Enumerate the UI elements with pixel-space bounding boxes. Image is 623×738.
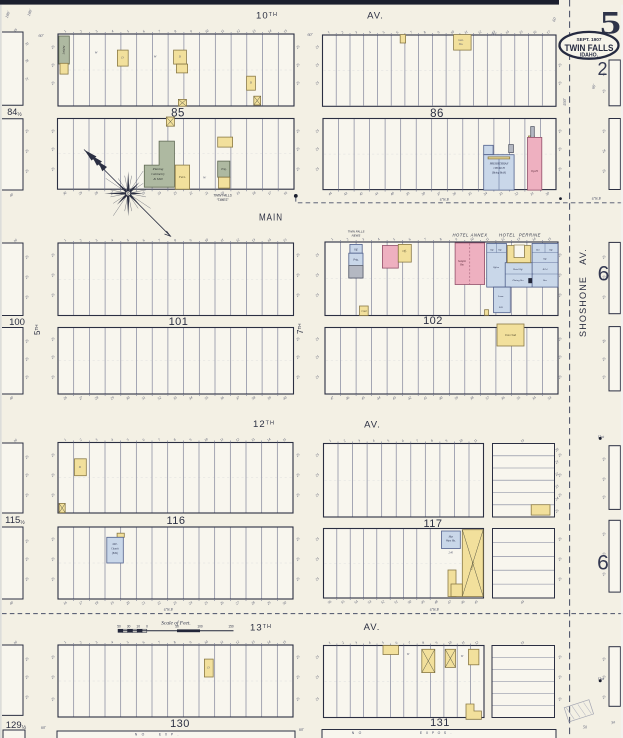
svg-text:Furn.: Furn. xyxy=(178,175,186,179)
svg-text:Coal: Coal xyxy=(361,310,366,313)
svg-text:Prtg.: Prtg. xyxy=(352,259,359,262)
svg-text:60′: 60′ xyxy=(38,33,43,38)
svg-text:102: 102 xyxy=(423,315,443,327)
svg-text:Church: Church xyxy=(111,548,119,551)
svg-text:Office: Office xyxy=(493,266,500,269)
svg-text:240: 240 xyxy=(449,551,454,555)
svg-text:Op.H.: Op.H. xyxy=(531,169,539,173)
svg-text:“TIMES”: “TIMES” xyxy=(217,198,230,202)
svg-text:6″W.P.: 6″W.P. xyxy=(440,198,450,202)
svg-text:HOTEL ANNEX: HOTEL ANNEX xyxy=(452,232,487,237)
svg-text:.: . xyxy=(178,733,179,737)
svg-text:Off.: Off. xyxy=(549,248,553,251)
svg-text:W: W xyxy=(407,652,410,656)
svg-text:86: 86 xyxy=(430,108,444,120)
svg-text:60′: 60′ xyxy=(299,727,304,732)
svg-text:AV.: AV. xyxy=(364,420,381,431)
svg-text:£60′: £60′ xyxy=(562,98,567,105)
svg-text:Off.: Off. xyxy=(498,248,502,251)
svg-text:Off.: Off. xyxy=(354,249,359,252)
svg-text:SHOSHONE AV.: SHOSHONE AV. xyxy=(578,248,588,337)
svg-text:Lodging: Lodging xyxy=(63,45,66,55)
svg-text:50: 50 xyxy=(175,625,179,629)
svg-text:117: 117 xyxy=(423,518,442,530)
svg-text:60′: 60′ xyxy=(41,725,46,730)
svg-text:101: 101 xyxy=(169,316,189,328)
svg-text:Bar: Bar xyxy=(536,248,540,251)
svg-text:(Being Built): (Being Built) xyxy=(492,172,506,175)
svg-text:Bil'd: Bil'd xyxy=(543,268,548,271)
svg-text:O: O xyxy=(438,731,441,735)
svg-text:6: 6 xyxy=(598,263,610,286)
svg-text:B.R.: B.R. xyxy=(499,306,504,309)
svg-text:6″W.P.: 6″W.P. xyxy=(430,608,440,612)
svg-text:2: 2 xyxy=(597,59,607,79)
svg-text:CHURCH: CHURCH xyxy=(493,167,505,170)
svg-text:Sample: Sample xyxy=(458,260,467,263)
svg-text:M.E.: M.E. xyxy=(111,543,117,546)
svg-text:Cabinetry: Cabinetry xyxy=(151,172,165,176)
svg-text:6″W.P.: 6″W.P. xyxy=(592,197,602,201)
svg-text:Laun.: Laun. xyxy=(497,295,504,298)
svg-text:50: 50 xyxy=(117,625,121,629)
svg-text:6″W.P.: 6″W.P. xyxy=(164,608,174,612)
svg-text:O: O xyxy=(142,733,145,737)
svg-text:AV.: AV. xyxy=(367,11,384,22)
svg-text:Off.: Off. xyxy=(543,258,547,261)
svg-text:30: 30 xyxy=(127,625,131,629)
svg-text:AV.: AV. xyxy=(364,622,381,633)
svg-text:10: 10 xyxy=(136,625,140,629)
svg-text:6: 6 xyxy=(597,552,609,575)
svg-text:PRESBYTERIAN: PRESBYTERIAN xyxy=(489,163,509,166)
svg-text:Sto.: Sto. xyxy=(459,43,464,46)
svg-text:O: O xyxy=(359,731,362,735)
svg-text:HOTEL PERRINE: HOTEL PERRINE xyxy=(499,232,541,237)
svg-text:Hay: Hay xyxy=(448,536,454,539)
svg-text:Prtg.: Prtg. xyxy=(220,168,227,171)
svg-text:60′: 60′ xyxy=(307,32,312,37)
svg-text:Gen.: Gen. xyxy=(458,39,464,42)
svg-text:Rm: Rm xyxy=(459,264,464,267)
svg-text:116: 116 xyxy=(166,515,185,527)
svg-text:0: 0 xyxy=(146,625,148,629)
svg-text:Planing: Planing xyxy=(152,167,164,171)
svg-text:Bar: Bar xyxy=(543,279,547,282)
svg-text:.: . xyxy=(451,731,452,735)
svg-text:Iron Clad: Iron Clad xyxy=(504,334,516,337)
svg-text:130: 130 xyxy=(170,718,190,730)
svg-text:Dining Rm: Dining Rm xyxy=(512,279,524,282)
svg-text:100: 100 xyxy=(9,317,25,328)
svg-text:IDAHO.: IDAHO. xyxy=(580,52,599,58)
svg-text:& Mill: & Mill xyxy=(153,177,162,181)
svg-text:NEWS: NEWS xyxy=(352,234,361,238)
svg-text:MAIN: MAIN xyxy=(259,213,283,224)
svg-text:Hotel Off.: Hotel Off. xyxy=(512,268,523,271)
svg-text:Off.: Off. xyxy=(490,248,494,251)
svg-text:131: 131 xyxy=(430,717,450,729)
svg-text:W: W xyxy=(461,654,464,658)
svg-text:100: 100 xyxy=(197,625,203,629)
svg-text:(B.B.): (B.B.) xyxy=(112,552,118,555)
svg-text:150: 150 xyxy=(228,625,234,629)
svg-text:Ware Ho.: Ware Ho. xyxy=(446,540,456,543)
svg-text:Off.: Off. xyxy=(403,250,408,253)
svg-text:60′: 60′ xyxy=(491,32,496,37)
